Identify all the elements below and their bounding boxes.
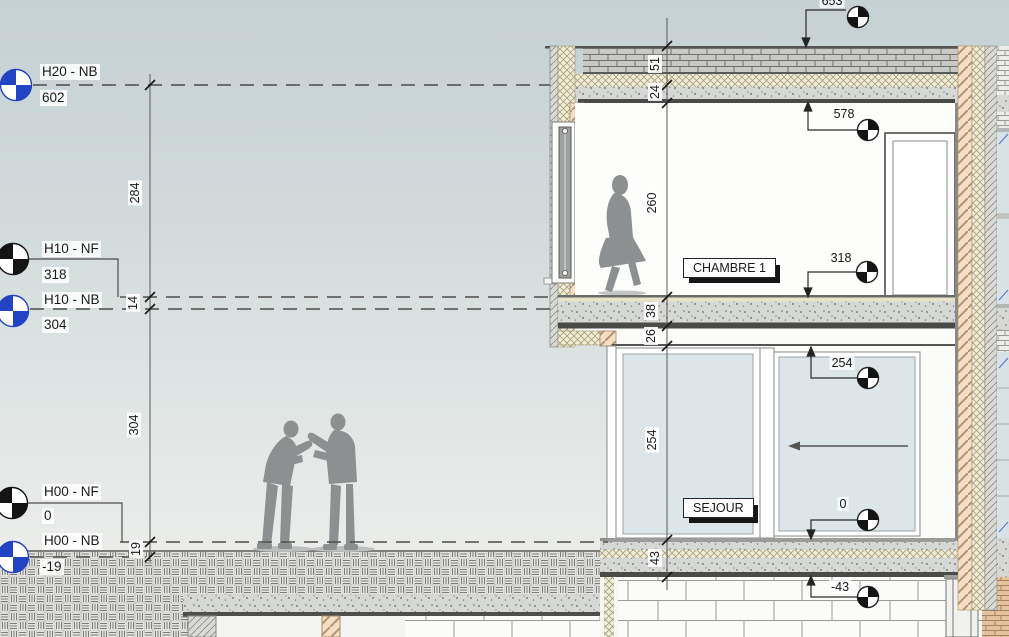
dim-284[interactable]: 284 — [128, 181, 142, 206]
spot-marker-chambre-ceiling[interactable] — [858, 120, 879, 141]
level-value-h20-nb[interactable]: 602 — [40, 90, 67, 106]
spot-marker-sejour-floor[interactable] — [858, 510, 879, 531]
dim-19[interactable]: 19 — [129, 540, 143, 558]
level-label-h20-nb[interactable]: H20 - NB — [40, 64, 100, 80]
dim-14[interactable]: 14 — [126, 294, 140, 312]
room-tag-chambre[interactable]: CHAMBRE 1 — [683, 258, 776, 278]
level-marker-h10-nb[interactable] — [0, 296, 29, 327]
section-drawing-canvas: H20 - NB 602 H10 - NF 318 H10 - NB 304 H… — [0, 0, 1009, 637]
terrace-ground — [0, 550, 622, 637]
men-silhouettes[interactable] — [253, 414, 375, 553]
level-value-h00-nb[interactable]: -19 — [40, 559, 64, 575]
spot-value-sejour-ceiling[interactable]: 254 — [830, 356, 855, 370]
spot-value-chambre-floor[interactable]: 318 — [829, 251, 854, 265]
roof-assembly — [545, 46, 1009, 104]
spot-marker-foundation[interactable] — [858, 587, 879, 608]
intermediate-floor — [558, 295, 1009, 347]
level-value-h10-nf[interactable]: 318 — [42, 267, 69, 283]
level-label-h10-nf[interactable]: H10 - NF — [42, 241, 101, 257]
spot-marker-roof[interactable] — [848, 7, 869, 28]
level-label-h00-nb[interactable]: H00 - NB — [42, 533, 102, 549]
spot-marker-sejour-ceiling[interactable] — [858, 368, 879, 389]
spot-value-roof[interactable]: 653 — [820, 0, 845, 8]
level-marker-h20-nb[interactable] — [1, 70, 32, 101]
right-wall-section — [955, 46, 997, 610]
dim-43[interactable]: 43 — [648, 549, 662, 567]
level-marker-h00-nb[interactable] — [0, 542, 29, 573]
dim-26[interactable]: 26 — [644, 327, 658, 345]
dim-254[interactable]: 254 — [645, 428, 659, 453]
spot-value-chambre-ceiling[interactable]: 578 — [832, 107, 857, 121]
dim-38[interactable]: 38 — [644, 302, 658, 320]
dim-304[interactable]: 304 — [127, 413, 141, 438]
spot-value-foundation[interactable]: -43 — [829, 580, 851, 594]
drawing-graphics — [0, 0, 1009, 637]
room-tag-sejour[interactable]: SEJOUR — [683, 498, 754, 518]
sejour-sliding-door[interactable] — [607, 346, 955, 542]
level-lines[interactable] — [26, 85, 608, 557]
chambre-window[interactable] — [552, 122, 575, 283]
level-value-h10-nb[interactable]: 304 — [42, 317, 69, 333]
spot-value-sejour-floor[interactable]: 0 — [838, 497, 849, 511]
level-label-h10-nb[interactable]: H10 - NB — [42, 292, 102, 308]
level-marker-h10-nf[interactable] — [0, 244, 29, 275]
chambre-door-panel[interactable] — [885, 133, 955, 303]
left-dimension-chain[interactable] — [145, 74, 155, 562]
dim-260[interactable]: 260 — [645, 191, 659, 216]
spot-marker-chambre-floor[interactable] — [857, 262, 878, 283]
level-label-h00-nf[interactable]: H00 - NF — [42, 484, 101, 500]
dim-51[interactable]: 51 — [648, 55, 662, 73]
level-value-h00-nf[interactable]: 0 — [42, 508, 54, 524]
facade-beyond-cut — [997, 46, 1009, 577]
dim-24[interactable]: 24 — [648, 83, 662, 101]
level-marker-h00-nf[interactable] — [0, 488, 28, 519]
